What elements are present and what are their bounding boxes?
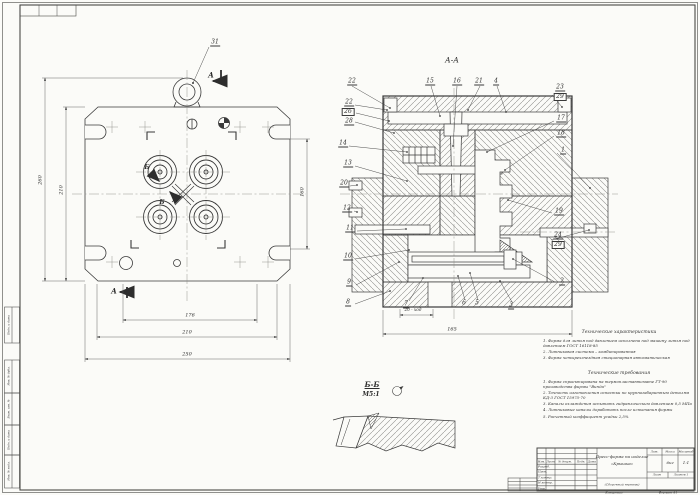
section-title: А-А [445,56,459,64]
callout-left-8: 8 [345,300,351,307]
callout-right-1: 1 [560,148,566,155]
tb-header-sheet: Лист [653,474,661,477]
callout-left-13: 13 [343,161,353,168]
margin-format: Формат А1 [659,492,677,495]
dim-bottom-3: 250 [182,353,192,358]
tb-header-sign: Подп. [577,460,586,463]
callout-right-18: 18 [556,131,566,138]
tech-req-item-5: 5. Расчетный коэффициент усадки 2,5% [543,414,695,419]
section-letter-a-bottom: А [111,288,117,295]
runner-channels [172,184,194,205]
tech-req-item-4: 4. Литниковые каналы доработать после ис… [543,407,695,412]
plan-view [42,47,310,362]
cavity-circles [144,156,223,234]
tech-requirements-title: Технические требования [543,371,695,376]
dim-section-width: 165 [447,328,457,333]
tb-header-sheets: Листов 1 [674,474,688,477]
callout-top-15: 15 [425,79,435,86]
dim-bottom-1: 176 [185,314,195,319]
tb-subtitle: (Сборочный чертеж) [605,483,640,486]
dim-right: 160 [301,187,306,197]
drawing-linework [0,0,700,495]
dim-stroke: 20 - ход [405,308,422,312]
callout-left-12: 12 [342,206,352,213]
section-letter-b-1: Б [144,165,149,171]
tech-req-item-2: 2. Точность изготовления оснастки по кру… [543,390,695,400]
tb-header-scale: Масштаб [679,450,694,453]
dim-left-outer: 260 [39,175,44,185]
callout-top-21: 21 [474,79,484,86]
tb-header-lit: Лит. [651,450,659,453]
callout-left-14: 14 [338,141,348,148]
stamp-label-3: Подп. и дата [8,430,11,450]
tech-char-item-2: 2. Литниковая система – комбинированная [543,349,695,354]
tb-title-line1: Пресс-форма на изделие [596,455,649,459]
tech-req-item-3: 3. Каналы охлаждения испытать гидравличе… [543,401,695,406]
stamp-label-0: Подп. и дата [8,315,11,335]
callout-left-9: 9 [346,280,352,287]
detail-title: Б-Б [365,381,380,389]
callout-right-24: 24 [553,233,563,240]
section-letter-a-top: А [208,72,214,79]
callout-left-28: 28 [344,119,354,126]
tech-req-item-1: 1. Форма спроектирована на термопластавт… [543,379,695,389]
stamp-label-1: Инв. № дубл. [8,367,11,386]
plan-callout-31: 31 [210,40,220,47]
detail-scale: М5:1 [362,392,379,398]
margin-copied: Копировал [605,492,622,495]
stamp-label-2: Взам. инв. № [8,399,11,418]
tb-role-prov: Пров. [538,471,547,474]
tb-value-mass: 6кг [667,461,674,465]
tb-header-mass: Масса [665,450,674,453]
callout-right-29b: 29 [552,241,565,249]
callout-31-leader [192,47,209,84]
dim-bottom-2: 210 [182,331,192,336]
callout-left-11: 11 [345,226,355,233]
tech-char-item-3: 3. Форма четырехгнездная стационарная ав… [543,355,695,360]
drawing-sheet: 31 А А Б Б 260 210 160 176 210 250 А-А 2… [0,0,700,495]
detail-view [333,386,455,451]
tb-title-line2: «Крышка» [611,462,633,466]
tech-characteristics-title: Технические характеристики [543,330,695,335]
callout-left-26: 26 [342,108,355,116]
callout-right-29a: 29 [554,93,567,101]
callout-left-22: 22 [344,100,354,107]
tech-characteristics: Технические характеристики 1. Форма для … [543,330,695,361]
callout-right-2: 2 [559,279,565,286]
rotated-symbol-icon [393,386,404,396]
tb-role-nkontr: Н.контр. [538,482,553,485]
callout-right-17: 17 [556,116,566,123]
callout-left-20: 20 [339,181,349,188]
callout-top-22: 22 [347,79,357,86]
tb-header-doc: № докум. [558,460,572,463]
tb-header-list: Лист [546,460,554,463]
tb-role-razrab: Разраб. [538,465,550,468]
tb-value-scale: 1:1 [683,461,689,465]
callout-right-23: 23 [555,85,565,92]
tb-header-date: Дата [588,460,596,463]
callout-bottom-3: 3 [508,303,514,310]
section-letter-b-2: Б [159,200,164,206]
stamp-label-4: Инв. № подл. [8,461,11,480]
tech-char-item-1: 1. Форма для литья под давлением исполне… [543,338,695,348]
cooling-hole [120,257,133,270]
tb-role-tkontr: Т.контр. [538,476,552,479]
callout-top-16: 16 [452,79,462,86]
callout-bottom-6: 6 [461,301,467,308]
callout-top-4: 4 [493,79,499,86]
dim-left-inner: 210 [60,185,65,195]
tb-role-utv: Утв. [538,487,546,490]
callout-bottom-5: 5 [474,301,480,308]
insert-corner-marks [131,132,236,248]
tb-header-izm: Изм. [538,460,545,463]
tech-requirements: Технические требования 1. Форма спроекти… [543,371,695,420]
callout-left-10: 10 [343,254,353,261]
callout-right-19: 19 [554,209,564,216]
